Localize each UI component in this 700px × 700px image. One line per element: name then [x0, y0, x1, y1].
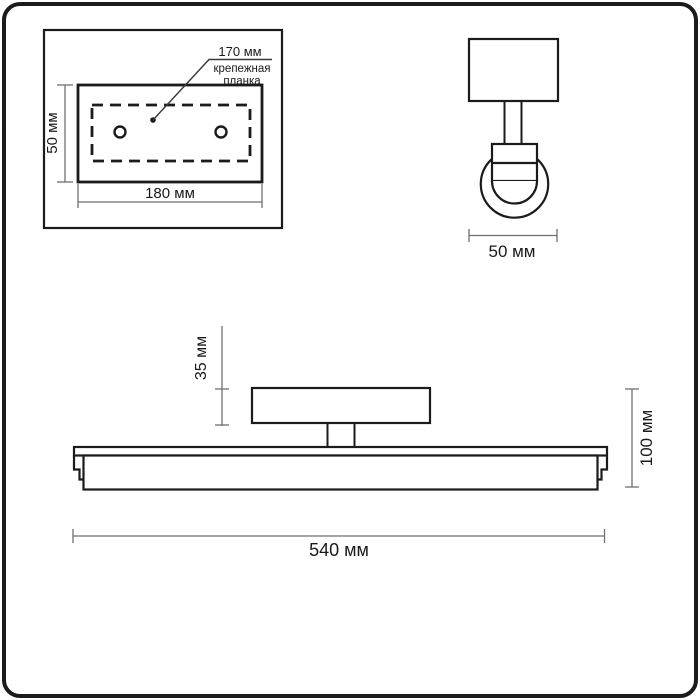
- bracket-label-line2: планка: [223, 76, 261, 88]
- side-view: 50 мм: [469, 39, 558, 261]
- front-view: 35 мм 100 мм 540 мм: [73, 326, 656, 560]
- side-width-dimension: 50 мм: [469, 229, 557, 261]
- screw-hole-right: [216, 127, 227, 138]
- front-plate-height-label: 35 мм: [193, 336, 210, 380]
- front-total-height-label: 100 мм: [637, 410, 656, 466]
- plate-height-dimension: 50 мм: [44, 85, 73, 182]
- dimension-drawing: 170 мм крепежная планка 50 мм 180 мм: [0, 0, 700, 700]
- mounting-plate-outline: [78, 85, 262, 182]
- front-total-height-dimension: 100 мм: [625, 389, 656, 487]
- front-total-width-dimension: 540 мм: [73, 529, 605, 560]
- bar-top-rail: [74, 447, 607, 456]
- side-wall-plate: [469, 39, 558, 101]
- bar-left-end-step: [74, 456, 84, 480]
- bracket-label-line1: крепежная: [214, 63, 271, 75]
- holes-distance-label: 170 мм: [218, 44, 261, 59]
- drawing-svg: 170 мм крепежная планка 50 мм 180 мм: [0, 0, 700, 700]
- plate-width-dimension: 180 мм: [78, 184, 262, 208]
- screw-hole-left: [115, 127, 126, 138]
- plate-width-label: 180 мм: [145, 185, 195, 202]
- front-total-width-label: 540 мм: [309, 540, 369, 560]
- bar-right-end-step: [598, 456, 608, 480]
- side-width-label: 50 мм: [488, 242, 535, 261]
- front-plate-height-dimension: 35 мм: [193, 326, 229, 426]
- bar-body: [84, 456, 598, 490]
- plate-height-label: 50 мм: [44, 112, 61, 153]
- front-wall-plate: [252, 388, 430, 423]
- mounting-plate-view: 170 мм крепежная планка 50 мм 180 мм: [44, 30, 282, 228]
